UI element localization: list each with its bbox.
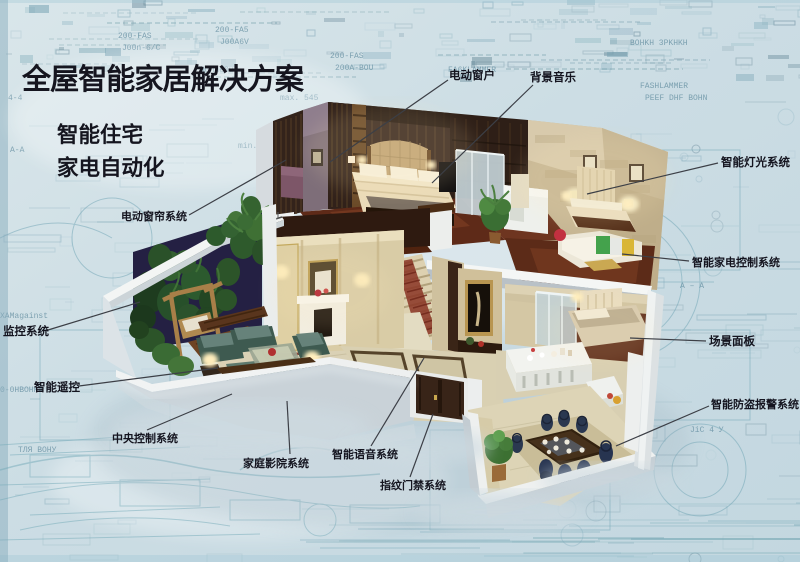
svg-text:A-A: A-A <box>10 146 25 155</box>
svg-text:200-FAS: 200-FAS <box>118 32 152 41</box>
svg-text:PEEF DHF BOHN: PEEF DHF BOHN <box>645 94 708 103</box>
svg-text:电动窗帘系统: 电动窗帘系统 <box>121 209 187 223</box>
svg-text:200A-BOU: 200A-BOU <box>335 64 374 73</box>
svg-text:BOHKH 3PKHKH: BOHKH 3PKHKH <box>630 39 688 48</box>
svg-text:智能防盗报警系统: 智能防盗报警系统 <box>711 397 799 411</box>
svg-text:指纹门禁系统: 指纹门禁系统 <box>380 478 446 492</box>
svg-text:200-FA5: 200-FA5 <box>215 26 249 35</box>
svg-text:200-FAS: 200-FAS <box>330 52 364 61</box>
svg-text:家庭影院系统: 家庭影院系统 <box>243 456 309 470</box>
svg-text:智能家电控制系统: 智能家电控制系统 <box>692 255 780 269</box>
svg-text:FASHLAMMER: FASHLAMMER <box>640 82 688 91</box>
svg-text:智能语音系统: 智能语音系统 <box>332 447 398 461</box>
svg-text:智能灯光系统: 智能灯光系统 <box>721 155 790 169</box>
svg-text:J00A6V: J00A6V <box>220 38 249 47</box>
svg-text:A – A: A – A <box>680 282 704 291</box>
svg-text:家电自动化: 家电自动化 <box>57 155 165 180</box>
svg-text:智能遥控: 智能遥控 <box>34 380 80 394</box>
svg-text:背景音乐: 背景音乐 <box>530 70 576 84</box>
svg-text:中央控制系统: 中央控制系统 <box>112 431 178 445</box>
svg-text:电动窗户: 电动窗户 <box>449 68 495 82</box>
svg-text:全屋智能家居解决方案: 全屋智能家居解决方案 <box>21 62 305 96</box>
svg-text:场景面板: 场景面板 <box>709 334 755 348</box>
svg-text:智能住宅: 智能住宅 <box>57 122 143 147</box>
svg-text:JiC 4 У: JiC 4 У <box>690 426 724 435</box>
svg-text:监控系统: 监控系统 <box>3 324 49 338</box>
